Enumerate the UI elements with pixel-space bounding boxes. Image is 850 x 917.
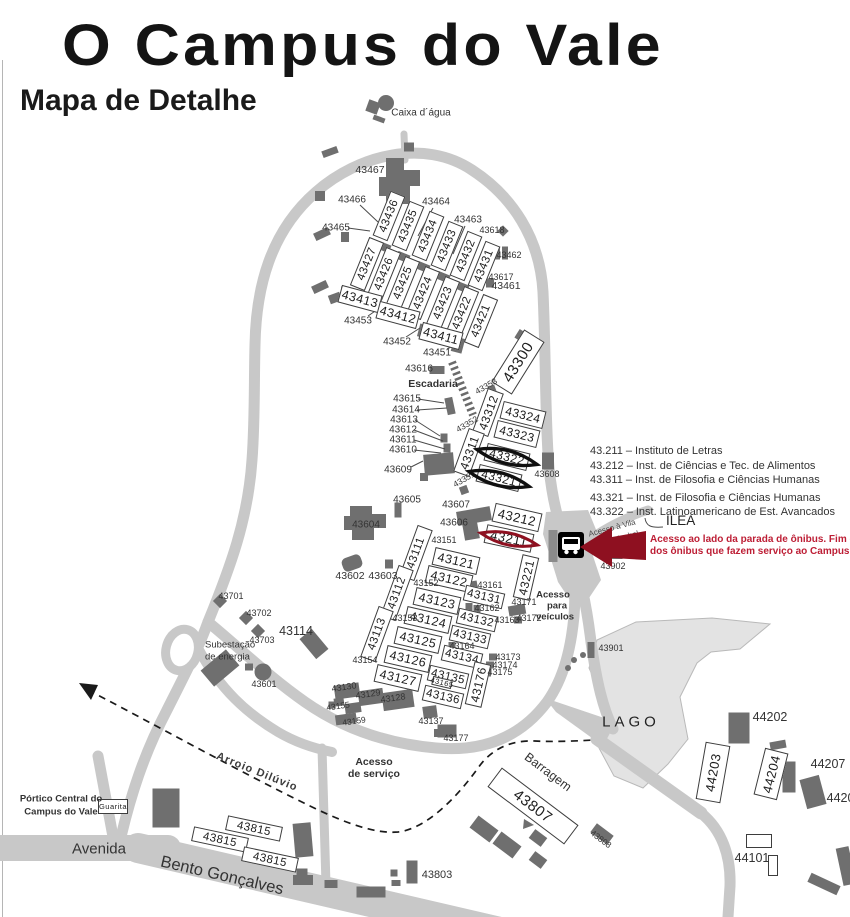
map-label: Campus do Vale [24, 807, 97, 818]
map-label: 43128 [380, 691, 406, 704]
map-label: 43129 [355, 687, 381, 700]
page-title: O Campus do Vale [62, 12, 664, 79]
map-label: LAGO [602, 714, 660, 731]
map-label: veículos [536, 612, 574, 623]
map-label: 44206 [827, 791, 850, 805]
map-label: 43162 [474, 603, 499, 613]
map-label: 43602 [335, 570, 364, 582]
building-box: 44204 [754, 748, 789, 800]
map-label: Subestação [205, 640, 255, 651]
map-label: 43451 [423, 348, 451, 359]
map-label: 43114 [279, 624, 313, 638]
map-label: 43701 [218, 591, 243, 601]
page-subtitle: Mapa de Detalhe [20, 84, 257, 118]
map-label: 43603 [368, 570, 397, 582]
map-label: 43130 [331, 680, 357, 693]
map-label: 43453 [344, 316, 372, 327]
map-label: 43808 [589, 828, 614, 850]
map-label: Escadaria [408, 378, 458, 390]
map-label: 43161 [477, 580, 502, 590]
map-label: 43803 [422, 869, 453, 881]
bus-stop-icon [558, 532, 584, 558]
map-label: 43606 [440, 518, 468, 529]
map-label: 43601 [251, 679, 276, 689]
map-label: 43702 [246, 608, 271, 618]
bus-access-note: Acesso ao lado da parada de ônibus. Fim … [650, 534, 850, 559]
map-label: Arroio Dilúvio [215, 750, 300, 794]
building-box [746, 834, 772, 848]
map-label: 43154 [352, 655, 377, 665]
map-label: 44202 [753, 710, 788, 724]
map-label: 43159 [342, 714, 367, 727]
map-label: Acesso [355, 756, 392, 768]
map-label: 43464 [422, 197, 450, 208]
legend-item: 43.212 – Inst. de Ciências e Tec. de Ali… [590, 459, 835, 474]
map-label: 43153 [392, 613, 417, 623]
map-label: 43463 [454, 215, 482, 226]
map-label: Avenida [72, 841, 126, 858]
legend-item: 43.321 – Inst. de Filosofia e Ciências H… [590, 491, 835, 506]
map-label: 43604 [352, 520, 380, 531]
map-label: de energia [205, 652, 250, 663]
map-label: 43607 [442, 500, 470, 511]
roundabout [161, 626, 203, 675]
building-box: 44203 [696, 741, 731, 802]
map-label: Barragem [522, 750, 574, 794]
map-label: 44207 [811, 757, 846, 771]
campus-map-page: 4343643435434344343343432434314342743426… [0, 0, 850, 917]
map-label: 43171 [511, 597, 536, 607]
map-label: 43615 [393, 394, 421, 405]
map-label: 43901 [598, 643, 623, 653]
legend-item: 43.322 – Inst. Latinoamericano de Est. A… [590, 505, 835, 520]
map-label: 43465 [322, 223, 350, 234]
map-label: de serviço [348, 768, 400, 780]
map-label: 43177 [443, 733, 468, 743]
map-label: Acesso [536, 590, 570, 601]
map-label: 43155 [326, 699, 351, 712]
legend-item: 43.311 – Inst. de Filosofia e Ciências H… [590, 473, 835, 488]
building-box: 43136 [422, 685, 465, 710]
stream-arrowhead [79, 683, 98, 700]
map-label: 43608 [534, 469, 559, 479]
map-label: 43466 [338, 195, 366, 206]
map-label: 43902 [600, 561, 625, 571]
legend-ilea-label: ILEA [666, 513, 695, 528]
map-label: 43462 [496, 250, 521, 260]
building-box: 43815 [241, 846, 299, 872]
map-label: Caixa d´água [391, 108, 450, 119]
map-label: 43605 [393, 495, 421, 506]
legend-item: 43.211 – Instituto de Letras [590, 444, 835, 459]
map-label: para [547, 601, 567, 612]
map-label: 43610 [389, 445, 417, 456]
map-label: 43151 [431, 535, 456, 545]
map-label: 43618 [479, 225, 504, 235]
map-label: 43175 [487, 667, 512, 677]
map-label: 43467 [355, 164, 384, 176]
building-box: Guarita [98, 799, 128, 814]
map-label: 43452 [383, 337, 411, 348]
building-box: 43300 [491, 329, 544, 394]
map-label: 43616 [405, 364, 433, 375]
map-label: 43609 [384, 465, 412, 476]
legend: 43.211 – Instituto de Letras 43.212 – In… [590, 444, 835, 520]
map-label: 43137 [418, 716, 443, 726]
map-label: 43164 [449, 641, 474, 651]
map-label: Pórtico Central do [20, 794, 102, 805]
note-line: Acesso ao lado da parada de ônibus. Fim … [650, 534, 850, 546]
bus-shelter [549, 530, 558, 562]
map-label: 43152 [413, 578, 438, 588]
map-label: 44101 [735, 851, 770, 865]
map-label: 43461 [491, 280, 520, 292]
note-line: dos ônibus que fazem serviço ao Campus d… [650, 546, 850, 558]
